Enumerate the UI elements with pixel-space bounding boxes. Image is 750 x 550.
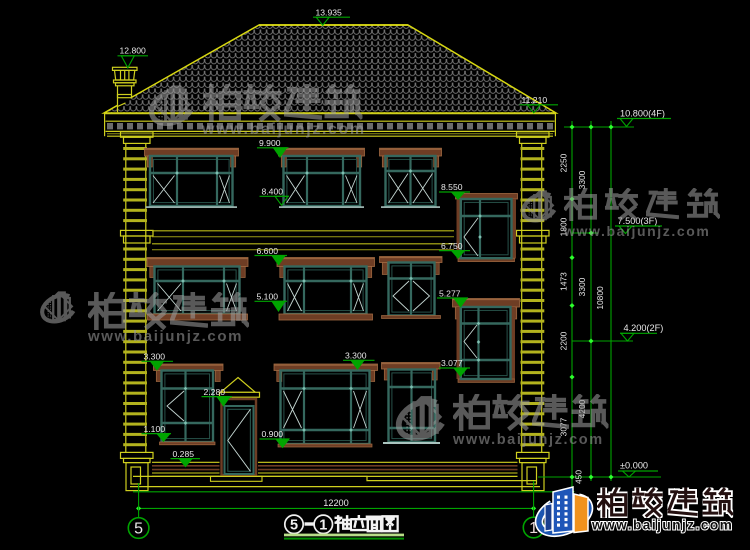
svg-text:6.600: 6.600 <box>257 246 279 256</box>
svg-text:www.baijunjz.com: www.baijunjz.com <box>563 223 710 239</box>
svg-text:13.935: 13.935 <box>316 8 343 18</box>
svg-text:0.285: 0.285 <box>173 449 195 459</box>
svg-text:1.100: 1.100 <box>144 424 166 434</box>
svg-text:www.baijunjz.com: www.baijunjz.com <box>452 432 604 448</box>
svg-text:9.900: 9.900 <box>259 138 281 148</box>
svg-text:2.280: 2.280 <box>204 387 226 397</box>
svg-text:5.100: 5.100 <box>257 292 279 302</box>
svg-text:450: 450 <box>574 470 584 484</box>
svg-text:11.210: 11.210 <box>522 95 548 105</box>
svg-text:6.750: 6.750 <box>441 241 463 251</box>
svg-text:±0.000: ±0.000 <box>620 461 648 471</box>
svg-text:2250: 2250 <box>559 153 569 172</box>
svg-text:12200: 12200 <box>323 498 349 508</box>
svg-text:www.baijunjz.com: www.baijunjz.com <box>591 518 733 533</box>
svg-text:1473: 1473 <box>559 272 569 291</box>
svg-text:10.800(4F): 10.800(4F) <box>620 109 665 119</box>
svg-text:1: 1 <box>319 518 327 534</box>
svg-text:3.077: 3.077 <box>441 358 463 368</box>
svg-text:5: 5 <box>290 518 298 534</box>
svg-text:2200: 2200 <box>559 331 569 350</box>
svg-text:3300: 3300 <box>577 277 587 296</box>
svg-text:www.baijunjz.com: www.baijunjz.com <box>87 328 243 345</box>
svg-text:12.800: 12.800 <box>120 46 147 56</box>
svg-text:0.900: 0.900 <box>262 429 284 439</box>
svg-text:3.300: 3.300 <box>144 352 166 362</box>
svg-text:3300: 3300 <box>577 170 587 189</box>
svg-text:8.400: 8.400 <box>262 187 284 197</box>
svg-text:5: 5 <box>134 521 143 538</box>
svg-text:10800: 10800 <box>595 286 605 310</box>
svg-text:5.277: 5.277 <box>439 288 461 298</box>
svg-text:4.200(2F): 4.200(2F) <box>624 323 664 333</box>
svg-text:8.550: 8.550 <box>441 182 463 192</box>
svg-text:www.baijunjz.com: www.baijunjz.com <box>201 121 366 138</box>
svg-text:3.300: 3.300 <box>345 351 367 361</box>
